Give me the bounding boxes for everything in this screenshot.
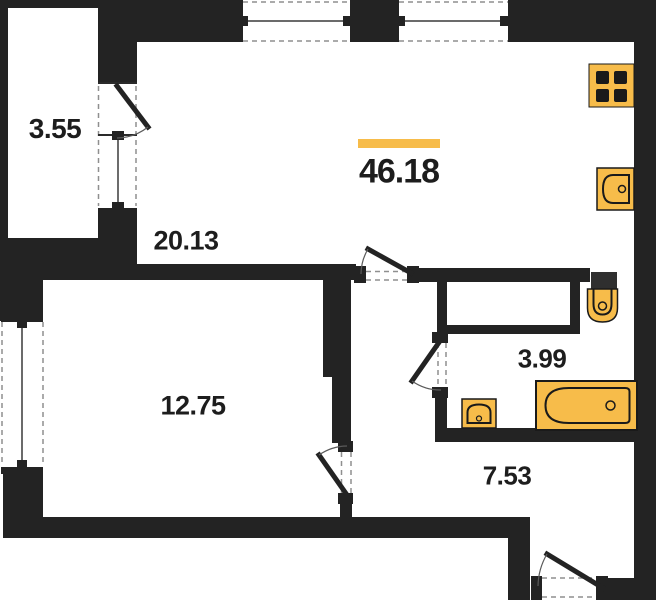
wall-segment bbox=[508, 0, 656, 42]
door-entrance bbox=[531, 554, 608, 600]
wall-segment bbox=[98, 208, 137, 238]
window-top-left bbox=[239, 2, 352, 41]
total-area-label: 46.18 bbox=[359, 153, 439, 192]
wall-segment bbox=[350, 0, 399, 42]
door-balcony bbox=[117, 86, 148, 138]
window-top-right bbox=[396, 2, 509, 41]
wall-segment bbox=[332, 377, 351, 443]
bedroom-area-label: 12.75 bbox=[160, 391, 225, 422]
bathroom-area-label: 3.99 bbox=[518, 344, 567, 375]
wall-segment bbox=[437, 325, 580, 334]
wall-segment bbox=[98, 8, 137, 84]
wall-segment bbox=[3, 468, 43, 517]
living-area-label: 20.13 bbox=[153, 226, 218, 257]
wall-segment bbox=[607, 578, 656, 600]
door-bedroom bbox=[319, 441, 353, 504]
wall-segment bbox=[0, 264, 356, 280]
total-area-underline bbox=[358, 139, 440, 148]
washbasin-icon bbox=[462, 399, 496, 428]
floor-plan: 3.55 20.13 46.18 12.75 3.99 7.53 bbox=[0, 0, 656, 600]
door-living bbox=[354, 249, 419, 283]
door-bathroom bbox=[412, 332, 448, 398]
wall-segment bbox=[412, 268, 590, 282]
stove-icon bbox=[589, 64, 634, 107]
wall-segment bbox=[570, 276, 580, 334]
window-bedroom-left bbox=[1, 315, 43, 474]
wall-segment bbox=[323, 278, 351, 377]
wall-segment bbox=[3, 517, 530, 538]
wall-segment bbox=[0, 273, 43, 321]
bathtub-icon bbox=[536, 381, 637, 430]
floor-plan-drawing bbox=[0, 0, 656, 600]
wall-segment bbox=[634, 0, 656, 578]
balcony-area-label: 3.55 bbox=[29, 113, 82, 145]
kitchen-sink-icon bbox=[597, 168, 634, 210]
hallway-area-label: 7.53 bbox=[483, 461, 532, 492]
toilet-icon bbox=[588, 272, 618, 322]
wall-segment bbox=[0, 0, 8, 238]
wall-segment bbox=[0, 0, 98, 8]
wall-segment bbox=[508, 538, 530, 600]
